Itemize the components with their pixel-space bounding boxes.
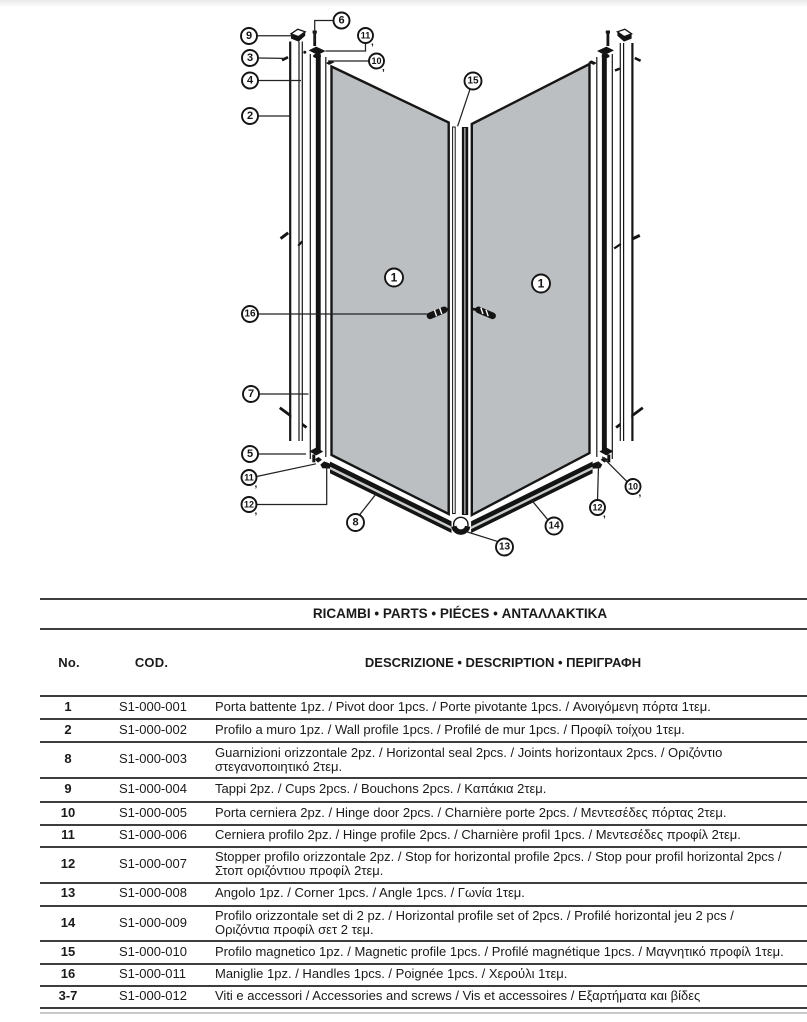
svg-text:4: 4 [247,75,254,87]
svg-text:3: 3 [247,52,253,64]
svg-text:,: , [382,63,385,74]
svg-text:11: 11 [361,31,371,41]
svg-text:8: 8 [352,517,358,529]
svg-text:7: 7 [248,388,254,400]
svg-text:12: 12 [592,503,602,513]
svg-text:,: , [639,488,642,499]
svg-text:6: 6 [338,15,344,27]
svg-text:9: 9 [246,30,252,42]
svg-text:10: 10 [628,482,638,492]
svg-text:,: , [603,509,606,520]
svg-text:1: 1 [538,277,545,291]
svg-text:11: 11 [244,473,254,483]
svg-text:1: 1 [391,271,398,285]
svg-text:16: 16 [244,309,256,320]
svg-text:2: 2 [247,110,253,122]
svg-text:14: 14 [548,521,560,532]
svg-text:12: 12 [244,500,254,510]
svg-text:13: 13 [499,542,511,553]
svg-text:,: , [371,37,374,48]
svg-text:,: , [255,479,258,490]
svg-text:5: 5 [247,448,253,460]
svg-text:10: 10 [371,56,381,66]
svg-text:15: 15 [467,76,479,87]
svg-text:,: , [255,506,258,517]
